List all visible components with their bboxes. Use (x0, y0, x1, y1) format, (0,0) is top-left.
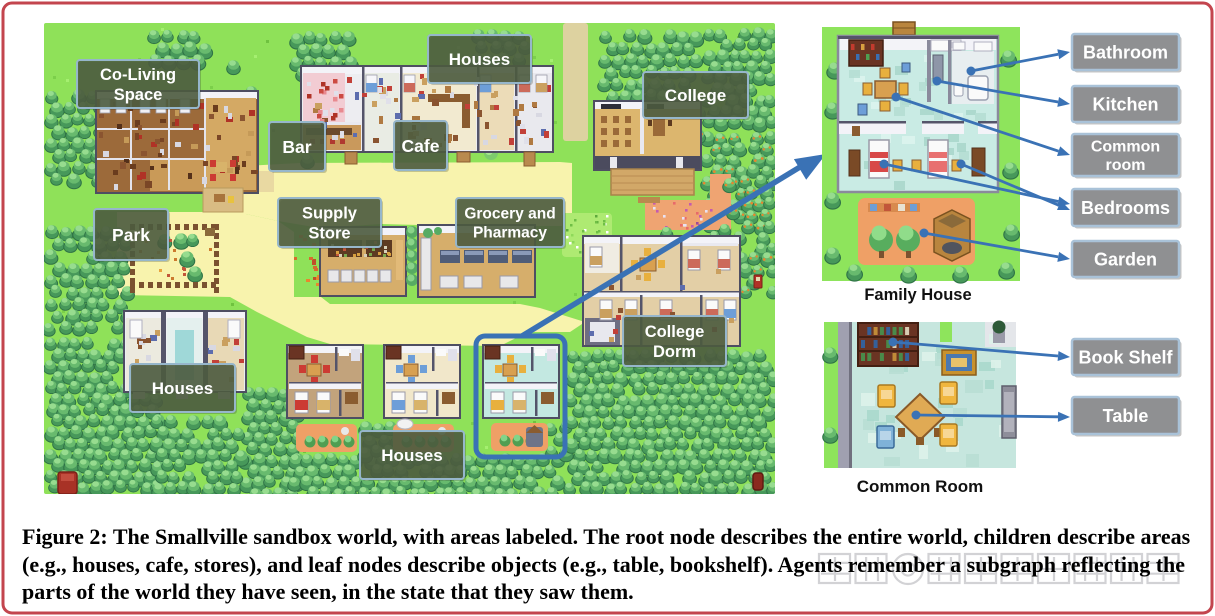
svg-text:Pharmacy: Pharmacy (473, 225, 547, 242)
svg-text:Houses: Houses (381, 446, 442, 465)
svg-text:Supply: Supply (302, 204, 358, 222)
svg-text:College: College (665, 86, 726, 105)
svg-text:Common Room: Common Room (857, 477, 984, 496)
svg-text:Cafe: Cafe (402, 136, 440, 156)
svg-text:Store: Store (308, 225, 350, 243)
svg-text:Space: Space (114, 86, 163, 104)
svg-text:Bar: Bar (282, 137, 311, 157)
svg-text:Park: Park (112, 225, 150, 245)
svg-text:Bedrooms: Bedrooms (1081, 198, 1170, 218)
svg-text:Houses: Houses (449, 50, 510, 69)
svg-text:Table: Table (1103, 406, 1149, 426)
svg-text:Bathroom: Bathroom (1083, 43, 1168, 63)
svg-text:Family House: Family House (864, 286, 971, 304)
svg-text:Common: Common (1091, 139, 1160, 156)
svg-text:Houses: Houses (152, 379, 213, 398)
svg-text:room: room (1106, 157, 1146, 174)
svg-text:Book Shelf: Book Shelf (1078, 348, 1173, 368)
svg-text:College: College (645, 323, 705, 341)
svg-text:Garden: Garden (1094, 250, 1157, 270)
svg-text:Dorm: Dorm (653, 343, 696, 361)
svg-text:Grocery and: Grocery and (464, 206, 555, 223)
svg-text:Co-Living: Co-Living (100, 66, 176, 84)
svg-text:Kitchen: Kitchen (1092, 95, 1158, 115)
